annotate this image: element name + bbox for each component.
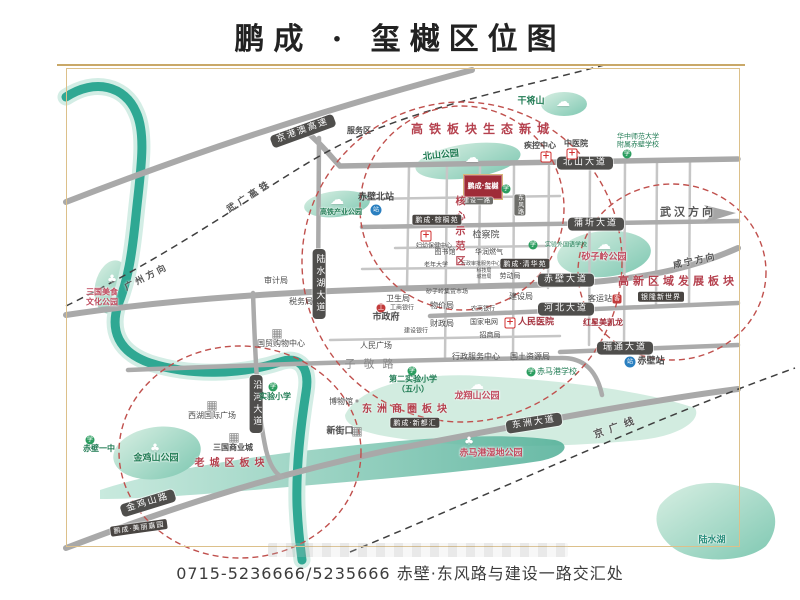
bld-icon: ▦ xyxy=(351,425,362,437)
school-icon: 学 xyxy=(529,241,538,250)
poi-admin-approval-center: 行政审批服务中心 xyxy=(461,261,501,267)
poi-chibi-north-station: 赤壁北站 xyxy=(358,193,394,204)
cloud-icon: ☁ xyxy=(330,193,344,207)
poi-peoples-square: 人民广场 xyxy=(360,341,392,351)
road-badge-hebei-avenue: 河北大道 xyxy=(538,303,594,316)
bld-icon: ▦ xyxy=(271,327,282,339)
direction-label-to-wuhan: 武汉方向 xyxy=(660,205,716,218)
poi-tcm-hospital: 中医院 xyxy=(564,139,588,149)
hosp-icon: + xyxy=(505,318,516,329)
poi-museum: 博物馆 xyxy=(329,397,353,407)
cloud-icon: ☁ xyxy=(465,151,479,165)
zone-label-core-demo-area: 核心示范区 xyxy=(452,196,464,271)
poi-huazhong-normal-affiliated-school: 华中师范大学附属赤壁学校 xyxy=(617,133,659,150)
cloud-icon: ☁ xyxy=(556,95,570,109)
hosp-icon: + xyxy=(541,152,552,163)
poi-zijing-road: 子敬路 xyxy=(345,357,402,370)
poi-guomao-shopping-center: 国贸购物中心 xyxy=(257,339,305,349)
poi-peoples-hospital: 人民医院 xyxy=(518,318,554,329)
poi-senior-university: 老年大学 xyxy=(424,261,448,268)
zone-label-gaotie-eco-newtown: 高铁板块生态新城 xyxy=(411,122,555,136)
project-logo: 鹏成·玺樾 xyxy=(463,174,503,200)
poi-bus-terminal: 客运站 xyxy=(588,294,612,304)
poi-finance-bureau: 财政局 xyxy=(430,319,454,329)
poi-cdc-center: 疾控中心 xyxy=(524,141,556,151)
poi-state-grid: 国家电网 xyxy=(470,318,498,326)
school-icon: 学 xyxy=(527,368,536,377)
poi-chibi-station: 赤壁站 xyxy=(637,357,664,368)
poi-audit-bureau: 审计局 xyxy=(264,276,288,286)
park-label-chimagang-wetland-park: 赤马港湿地公园 xyxy=(459,449,522,460)
poi-shiyan-primary-school: 实验小学 xyxy=(259,392,291,402)
page-title: 鹏成 · 玺樾区位图 xyxy=(234,14,565,58)
poi-sanguo-commercial-city: 三国商业城 xyxy=(213,443,253,453)
poi-no2-experimental-primary: 第二实验小学（五小） xyxy=(389,374,437,393)
road-badge-puqi-avenue: 蒲圻大道 xyxy=(568,218,624,231)
poi-construction-bureau: 建设局 xyxy=(509,292,533,302)
poi-rural-commercial-bank: 农商银行 xyxy=(471,305,495,312)
poi-shaziling-market: 砂子岭集贸市场 xyxy=(426,288,468,295)
location-map: 鹏成 · 玺樾区位图 鹏成·玺樾 0715-5236666/5235666 赤壁… xyxy=(0,0,800,600)
school-icon: 学 xyxy=(269,383,278,392)
school-icon: 学 xyxy=(86,436,95,445)
watermark xyxy=(268,543,568,557)
footer-contact: 0715-5236666/5235666 赤壁·东风路与建设一路交汇处 xyxy=(176,560,624,584)
project-badge-xinduhui: 鹏成·新都汇 xyxy=(390,418,439,428)
road-badge-chibi-avenue: 赤壁大道 xyxy=(538,274,594,287)
tree-icon: ♣ xyxy=(150,443,160,454)
park-label-sanguo-food-culture-park: 三国美食文化公园 xyxy=(86,287,118,306)
hosp-icon: + xyxy=(567,149,578,160)
bank-icon: 工 xyxy=(377,304,386,313)
poi-chibi-no1-middle-school: 赤壁一中 xyxy=(83,444,115,454)
road-badge-yanhe-avenue: 沿河大道 xyxy=(250,375,263,433)
poi-xinjiekou: 新街口 xyxy=(326,427,353,438)
poi-procuratorate: 检察院 xyxy=(472,231,499,242)
poi-investment-bureau: 招商局 xyxy=(480,331,501,339)
poi-huarun-gas: 华润燃气 xyxy=(475,248,503,256)
poi-ccb-bank: 建设银行 xyxy=(404,327,428,334)
bld-icon: ▦ xyxy=(206,399,217,411)
project-badge-qinghuayuan: 鹏成·清华苑 xyxy=(500,259,549,269)
poi-library: 图书馆 xyxy=(435,248,456,256)
poi-xihu-international-plaza: 西湖国际广场 xyxy=(188,411,236,421)
road-badge-lushuihu-avenue: 陆水湖大道 xyxy=(313,249,326,319)
school-icon: 学 xyxy=(623,150,632,159)
poi-admin-service-center: 行政服务中心 xyxy=(452,352,500,362)
hosp-icon: + xyxy=(421,231,432,242)
poi-redstar-macalline: 红星美凯龙 xyxy=(583,318,623,328)
bus-icon: 客 xyxy=(613,295,622,304)
park-label-longxiangshan-park: 龙翔山公园 xyxy=(454,392,499,403)
poi-health-bureau: 卫生局 xyxy=(386,294,410,304)
poi-service-area: 服务区 xyxy=(347,126,371,136)
zone-label-gaoxin-development: 高新区域发展板块 xyxy=(618,274,738,287)
road-badge-jianshe-yilu: 建设一路 xyxy=(461,197,493,204)
train-icon: 站 xyxy=(624,356,637,369)
poi-land-resources-bureau: 国土资源局 xyxy=(510,352,550,362)
zone-label-old-town: 老城区板块 xyxy=(195,458,270,470)
park-label-jinjishan-park: 金鸡山公园 xyxy=(133,454,178,465)
project-badge-yinlong-xinshijie: 银隆新世界 xyxy=(638,292,684,302)
bld-icon: ▦ xyxy=(228,431,239,443)
dot-icon xyxy=(356,400,359,403)
zone-label-dongzhou-business: 东洲商圈板块 xyxy=(362,404,452,416)
road-badge-dongfeng-road: 东风路 xyxy=(514,195,525,216)
park-label-ganjiangshan: 干将山 xyxy=(517,97,544,108)
poi-icbc-bank: 工商银行 xyxy=(390,304,414,311)
park-label-lushui-lake: 陆水湖 xyxy=(698,536,725,547)
tree-icon: ♣ xyxy=(107,274,117,285)
poi-price-bureau: 物价局 xyxy=(430,301,454,311)
poi-urban-management-bureau: 城管局 xyxy=(476,274,491,280)
tree-icon: ♣ xyxy=(464,436,474,447)
cloud-icon: ☁ xyxy=(597,238,611,252)
school-icon: 学 xyxy=(408,367,417,376)
road-badge-beishan-avenue: 北山大道 xyxy=(557,157,613,170)
park-label-gaotie-industry-park: 高铁产业公园 xyxy=(320,208,362,216)
poi-chimagang-school: 赤马港学校 xyxy=(537,367,577,377)
school-icon: 学 xyxy=(502,185,511,194)
poi-experimental-foreign-language-school: 实验外国语学校 xyxy=(545,241,587,248)
road-badge-ruitong-avenue: 瑞通大道 xyxy=(597,342,653,355)
project-badge-zonglvyuan: 鹏成·棕榈苑 xyxy=(412,215,461,225)
title-underline xyxy=(57,64,745,66)
train-icon: 站 xyxy=(370,204,383,217)
poi-city-government: 市政府 xyxy=(372,313,399,324)
park-label-shaziling-park: 砂子岭公园 xyxy=(581,253,626,264)
poi-labor-bureau: 劳动局 xyxy=(500,272,521,280)
poi-tax-bureau: 税务局 xyxy=(289,297,313,307)
cloud-icon: ☁ xyxy=(470,378,484,392)
